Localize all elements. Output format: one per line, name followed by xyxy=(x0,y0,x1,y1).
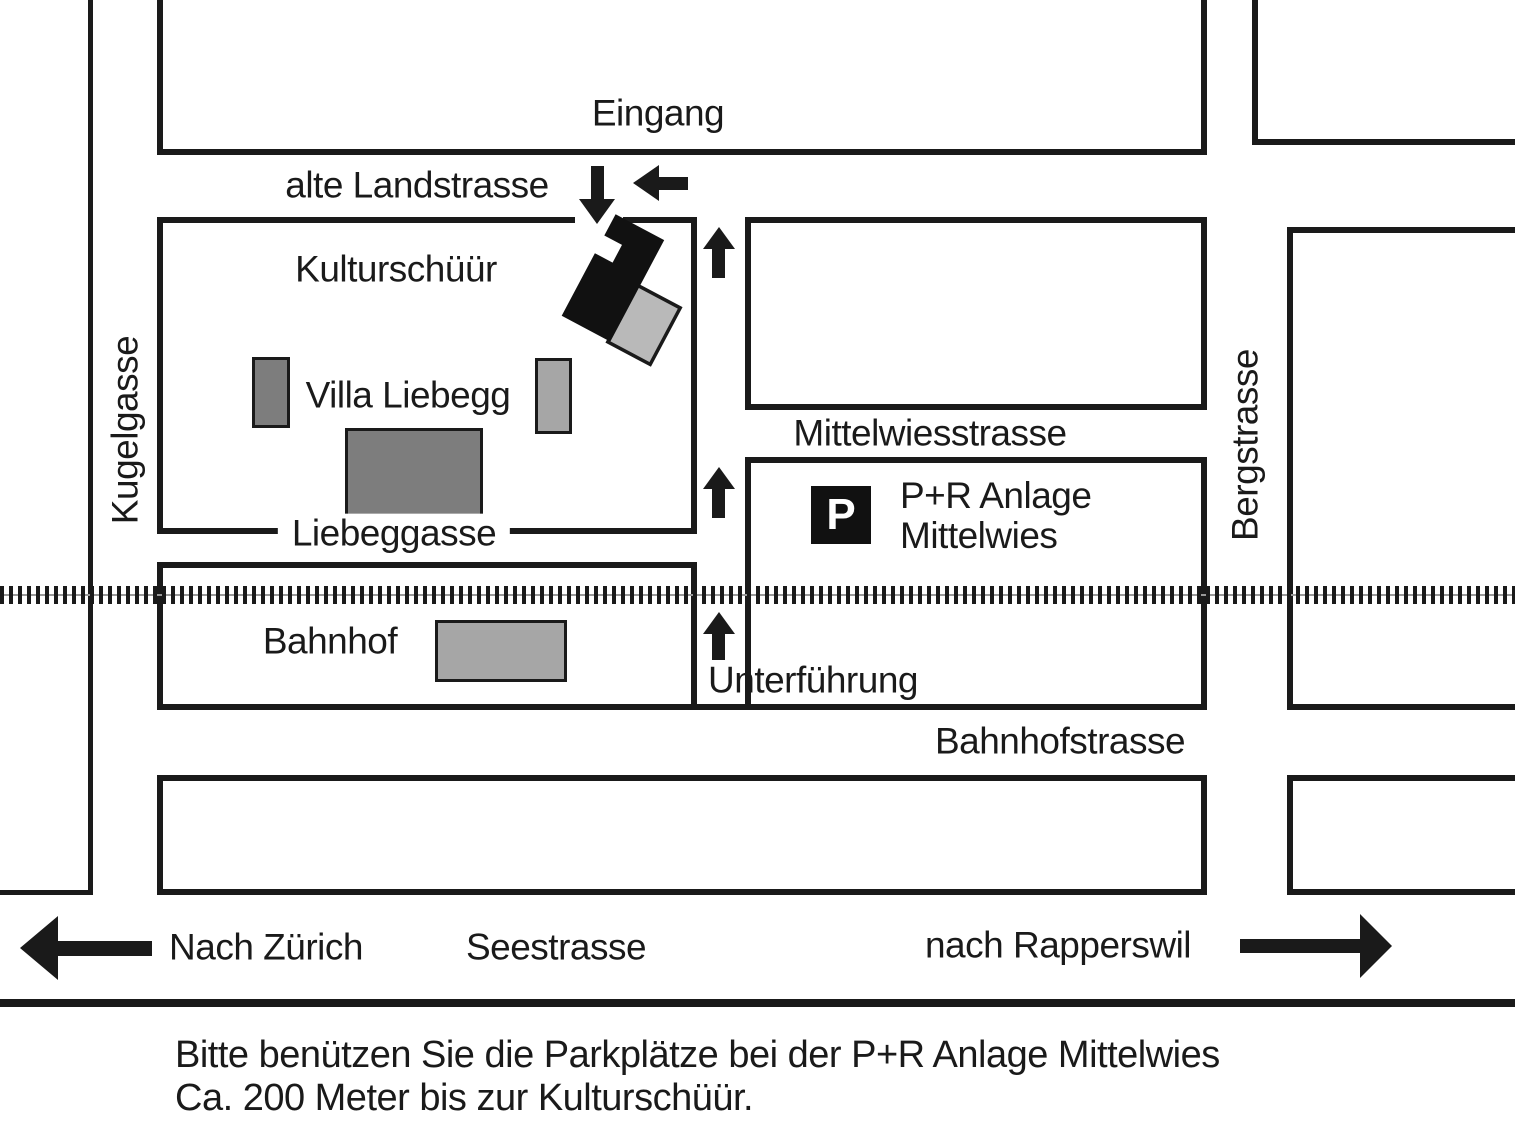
label-bahnhof: Bahnhof xyxy=(263,622,397,663)
park-and-ride-label-line1: P+R Anlage xyxy=(900,476,1091,516)
seestrasse-south-edge-line xyxy=(0,999,1515,1007)
villa-liebegg-building-main xyxy=(345,428,483,517)
label-unterfuehrung: Unterführung xyxy=(708,661,918,702)
map-caption-line1: Bitte benützen Sie die Parkplätze bei de… xyxy=(175,1034,1220,1077)
label-nach-zuerich: Nach Zürich xyxy=(169,928,363,969)
block-mittelwies-north xyxy=(745,217,1207,410)
arrow-left-icon xyxy=(633,165,688,201)
map-caption-line2: Ca. 200 Meter bis zur Kulturschüür. xyxy=(175,1077,1220,1120)
park-and-ride-label: P+R Anlage Mittelwies xyxy=(900,476,1091,556)
label-kulturschuur: Kulturschüür xyxy=(295,250,497,291)
label-nach-rapperswil: nach Rapperswil xyxy=(925,926,1191,967)
label-eingang: Eingang xyxy=(592,94,724,135)
label-bergstrasse: Bergstrasse xyxy=(1226,349,1267,541)
label-liebeggasse: Liebeggasse xyxy=(278,514,510,555)
label-seestrasse: Seestrasse xyxy=(466,928,646,969)
arrow-left-icon-nach-zuerich xyxy=(20,916,152,980)
arrow-down-icon xyxy=(579,166,615,224)
block-south xyxy=(157,775,1207,895)
block-north-east xyxy=(1252,0,1515,145)
arrow-right-icon-nach-rapperswil xyxy=(1240,914,1392,978)
block-east xyxy=(1287,227,1515,710)
label-villa-liebegg: Villa Liebegg xyxy=(306,376,511,417)
kugelgasse-road-line xyxy=(88,0,93,895)
site-map: P P+R Anlage Mittelwies Eingang alte Lan… xyxy=(0,0,1515,1126)
label-kugelgasse: Kugelgasse xyxy=(106,336,147,524)
park-and-ride-label-line2: Mittelwies xyxy=(900,516,1091,556)
villa-liebegg-building-west xyxy=(252,357,290,428)
bahnhof-building xyxy=(435,620,567,682)
parking-icon-letter: P xyxy=(826,490,855,540)
seestrasse-west-edge-line xyxy=(0,890,93,895)
map-caption: Bitte benützen Sie die Parkplätze bei de… xyxy=(175,1034,1220,1120)
label-bahnhofstrasse: Bahnhofstrasse xyxy=(935,722,1185,763)
label-alte-landstrasse: alte Landstrasse xyxy=(285,166,549,207)
arrow-up-icon-unterfuehrung xyxy=(702,612,735,660)
railway-line xyxy=(0,586,1515,604)
block-bahnhof xyxy=(157,562,697,710)
bahnhofstrasse-north-edge-segment xyxy=(693,704,749,710)
arrow-up-icon-mittelwies xyxy=(702,467,735,518)
label-mittelwiesstrasse: Mittelwiesstrasse xyxy=(793,414,1066,455)
arrow-up-icon-alte-landstrasse xyxy=(702,227,735,278)
block-south-east xyxy=(1287,775,1515,895)
kulturschuur-building-icon xyxy=(540,205,700,380)
parking-icon: P xyxy=(811,486,871,544)
